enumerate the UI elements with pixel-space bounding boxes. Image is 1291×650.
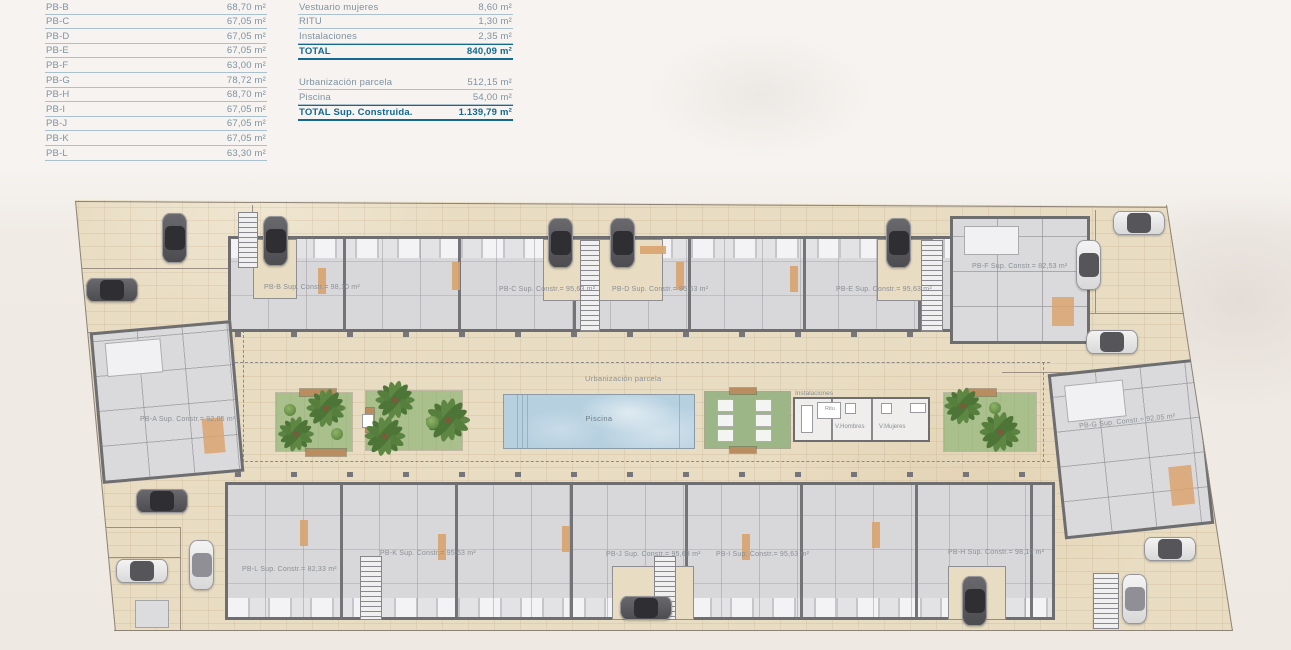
unit-label-pb-a: PB-A Sup. Constr.= 92,05 m² [140, 416, 235, 423]
car-icon [189, 540, 214, 590]
car-icon [1144, 537, 1196, 561]
car-icon [86, 278, 138, 302]
unit-id: PB-I [46, 104, 65, 116]
label-instalaciones: Instalaciones [795, 390, 833, 397]
summary-label: TOTAL [299, 46, 331, 58]
unit-label-pb-l: PB-L Sup. Constr.= 82,33 m² [242, 566, 337, 573]
summary-group-1: Vestuario mujeres 8,60 m² RITU 1,30 m² I… [298, 0, 513, 60]
summary-label: Piscina [299, 92, 331, 104]
summary-row: RITU 1,30 m² [298, 15, 513, 30]
unit-area: 78,72 m² [227, 75, 266, 87]
palm-tree-icon [363, 414, 407, 458]
unit-area: 63,30 m² [227, 148, 266, 160]
unit-label-pb-i: PB-I Sup. Constr.= 95,63 m² [716, 551, 809, 558]
site-plan-sheet: PB-B 68,70 m² PB-C 67,05 m² PB-D 67,05 m… [0, 0, 1291, 650]
summary-row: TOTAL 840,09 m² [298, 44, 513, 61]
unit-area: 67,05 m² [227, 133, 266, 145]
car-icon [962, 576, 987, 626]
terrace-accent [562, 526, 570, 552]
summary-label: RITU [299, 16, 322, 28]
bush-icon [989, 402, 1001, 414]
building-pb-g [1048, 359, 1215, 540]
unit-area: 68,70 m² [227, 2, 266, 14]
wall [871, 399, 873, 440]
summary-row: Piscina 54,00 m² [298, 90, 513, 105]
unit-label-pb-h: PB-H Sup. Constr.= 98,10 m² [948, 549, 1044, 556]
car-icon [620, 596, 672, 620]
summary-label: Urbanización parcela [299, 77, 392, 89]
area-table-row: PB-D 67,05 m² [45, 29, 267, 44]
car-icon [610, 218, 635, 268]
area-table-row: PB-L 63,30 m² [45, 146, 267, 161]
facilities-building: Ritu V.Hombres V.Mujeres [793, 397, 930, 442]
summary-row: Instalaciones 2,35 m² [298, 29, 513, 44]
unit-id: PB-H [46, 89, 70, 101]
unit-area: 67,05 m² [227, 118, 266, 130]
picnic-table [717, 399, 734, 412]
palm-tree-icon [978, 410, 1022, 454]
area-table-row: PB-C 67,05 m² [45, 15, 267, 30]
summary-value: 512,15 m² [467, 77, 512, 89]
area-table-row: PB-E 67,05 m² [45, 44, 267, 59]
bush-icon [284, 404, 296, 416]
stairs [1093, 573, 1119, 629]
bush-icon [331, 428, 343, 440]
picnic-table [717, 429, 734, 442]
summary-row: Urbanización parcela 512,15 m² [298, 75, 513, 90]
terrace-columns [235, 332, 1047, 337]
area-table-row: PB-G 78,72 m² [45, 73, 267, 88]
area-table-row: PB-F 63,00 m² [45, 58, 267, 73]
wc-fixture [881, 403, 892, 414]
picnic-table [755, 429, 772, 442]
summary-value: 1,30 m² [478, 16, 512, 28]
bush-icon [426, 416, 439, 429]
terrace-accent [452, 262, 460, 290]
unit-area: 67,05 m² [227, 45, 266, 57]
summary-value: 1.139,79 m² [459, 107, 512, 119]
stairs [360, 556, 382, 620]
area-table-row: PB-I 67,05 m² [45, 102, 267, 117]
wc-fixture [845, 403, 856, 414]
dashed-line [1043, 362, 1044, 462]
terrace-accent [790, 266, 798, 292]
dashed-line [230, 461, 1050, 462]
area-table-row: PB-H 68,70 m² [45, 88, 267, 103]
unit-label-pb-j: PB-J Sup. Constr.= 95,63 m² [606, 551, 701, 558]
car-icon [548, 218, 573, 268]
picnic-table [755, 414, 772, 427]
room-label-vestuario-mujeres: V.Mujeres [879, 424, 905, 430]
terrace-accent [872, 522, 880, 548]
building-pb-a [90, 320, 245, 484]
unit-id: PB-C [46, 16, 70, 28]
unit-area: 63,00 m² [227, 60, 266, 72]
terrace-columns [235, 472, 1047, 477]
unit-label-pb-b: PB-B Sup. Constr.= 98,10 m² [264, 284, 360, 291]
dashed-line [243, 330, 244, 462]
unit-label-pb-f: PB-F Sup. Constr.= 82,53 m² [972, 263, 1067, 270]
car-icon [1113, 211, 1165, 235]
summary-group-2: Urbanización parcela 512,15 m² Piscina 5… [298, 75, 513, 121]
unit-id: PB-K [46, 133, 69, 145]
car-icon [1122, 574, 1147, 624]
unit-area: 68,70 m² [227, 89, 266, 101]
terrace-accent [640, 246, 666, 254]
utility-pad [135, 600, 169, 628]
summary-label: TOTAL Sup. Construida. [299, 107, 413, 119]
room-label-ritu: Ritu [825, 406, 835, 412]
label-urbanizacion-parcela: Urbanización parcela [585, 374, 661, 383]
summary-row: TOTAL Sup. Construida. 1.139,79 m² [298, 105, 513, 122]
building-pb-f [950, 216, 1090, 344]
unit-id: PB-F [46, 60, 68, 72]
summary-row: Vestuario mujeres 8,60 m² [298, 0, 513, 15]
summary-label: Instalaciones [299, 31, 357, 43]
wc-fixture [801, 405, 813, 433]
parcel-boundary [114, 630, 1233, 631]
parking-line [75, 268, 251, 269]
unit-label-pb-d: PB-D Sup. Constr.= 95,63 m² [612, 286, 708, 293]
summary-value: 8,60 m² [478, 2, 512, 14]
unit-id: PB-G [46, 75, 70, 87]
dashed-line [230, 362, 1050, 363]
terrace-accent [300, 520, 308, 546]
parking-line [90, 557, 181, 558]
car-icon [886, 218, 911, 268]
unit-id: PB-B [46, 2, 69, 14]
palm-tree-icon [943, 386, 983, 426]
unit-id: PB-D [46, 31, 70, 43]
picnic-table [717, 414, 734, 427]
area-table-row: PB-K 67,05 m² [45, 131, 267, 146]
unit-label-pb-k: PB-K Sup. Constr.= 95,63 m² [380, 550, 476, 557]
parking-line [95, 527, 181, 528]
wc-fixture [910, 403, 926, 413]
car-icon [1076, 240, 1101, 290]
summary-table: Vestuario mujeres 8,60 m² RITU 1,30 m² I… [298, 0, 513, 121]
unit-id: PB-E [46, 45, 69, 57]
unit-label-pb-e: PB-E Sup. Constr.= 95,63 m² [836, 286, 932, 293]
pergola-step [730, 447, 756, 453]
car-icon [263, 216, 288, 266]
room-label-vestuario-hombres: V.Hombres [835, 424, 864, 430]
unit-id: PB-J [46, 118, 67, 130]
summary-label: Vestuario mujeres [299, 2, 378, 14]
car-icon [162, 213, 187, 263]
area-table-row: PB-B 68,70 m² [45, 0, 267, 15]
unit-areas-table: PB-B 68,70 m² PB-C 67,05 m² PB-D 67,05 m… [45, 0, 267, 161]
unit-area: 67,05 m² [227, 16, 266, 28]
summary-value: 840,09 m² [467, 46, 512, 58]
car-icon [136, 489, 188, 513]
unit-id: PB-L [46, 148, 68, 160]
unit-area: 67,05 m² [227, 104, 266, 116]
pool: Piscina [503, 394, 695, 449]
pergola-area [705, 392, 790, 448]
unit-label-pb-c: PB-C Sup. Constr.= 95,63 m² [499, 286, 595, 293]
picnic-table [755, 399, 772, 412]
stairs [238, 212, 258, 268]
area-table-row: PB-J 67,05 m² [45, 117, 267, 132]
summary-value: 2,35 m² [478, 31, 512, 43]
car-icon [116, 559, 168, 583]
parking-line [1080, 313, 1188, 314]
pool-label: Piscina [504, 414, 694, 423]
unit-area: 67,05 m² [227, 31, 266, 43]
palm-tree-icon [276, 414, 316, 454]
pergola-step [730, 388, 756, 394]
car-icon [1086, 330, 1138, 354]
summary-value: 54,00 m² [473, 92, 512, 104]
parking-line [180, 527, 181, 630]
